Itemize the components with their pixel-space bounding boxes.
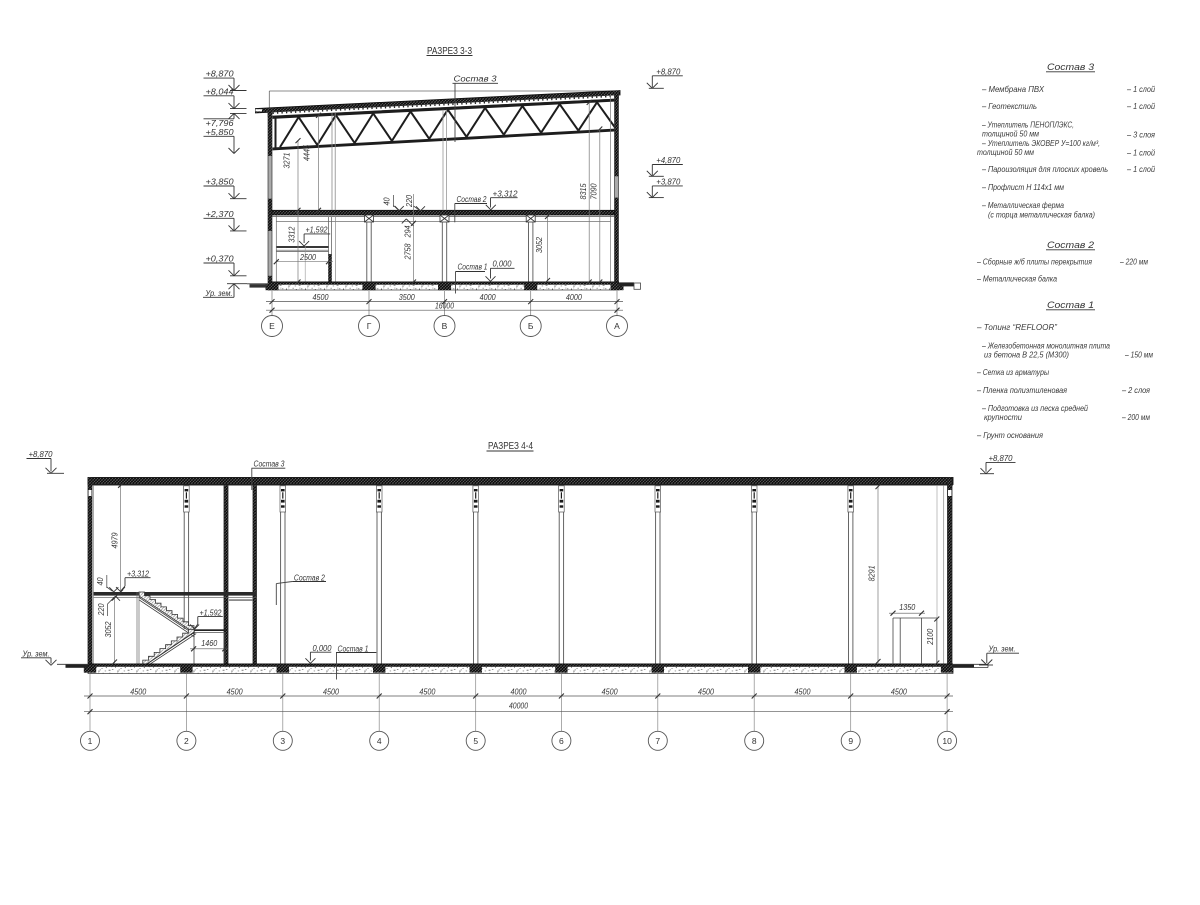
svg-text:+7,796: +7,796 (206, 119, 235, 128)
svg-text:– 3 слоя: – 3 слоя (1126, 131, 1156, 140)
svg-text:Ур. зем.: Ур. зем. (988, 645, 1016, 654)
svg-text:– Утеплитель ПЕНОПЛЭКС,: – Утеплитель ПЕНОПЛЭКС, (981, 121, 1074, 130)
svg-text:4000: 4000 (566, 293, 582, 302)
svg-text:4500: 4500 (891, 687, 907, 696)
svg-text:Состав 3: Состав 3 (1047, 62, 1095, 73)
svg-text:2500: 2500 (299, 253, 316, 262)
svg-text:9: 9 (848, 736, 853, 746)
svg-text:(с торца металлическая балка): (с торца металлическая балка) (988, 211, 1095, 220)
svg-text:4500: 4500 (602, 687, 618, 696)
svg-text:+8,870: +8,870 (656, 67, 681, 76)
svg-text:3052: 3052 (104, 621, 113, 637)
svg-text:4500: 4500 (419, 687, 435, 696)
svg-text:1460: 1460 (201, 639, 217, 648)
svg-text:0,000: 0,000 (313, 644, 333, 653)
svg-text:– Грунт основания: – Грунт основания (976, 431, 1044, 440)
svg-text:3271: 3271 (283, 153, 292, 169)
svg-text:– Железобетонная монолитная п: – Железобетонная монолитная плита (981, 342, 1110, 351)
svg-text:– 2 слоя: – 2 слоя (1121, 386, 1151, 395)
svg-text:4500: 4500 (323, 687, 339, 696)
svg-text:2100: 2100 (926, 628, 935, 645)
svg-text:1: 1 (88, 736, 93, 746)
svg-text:+1,592: +1,592 (306, 225, 328, 234)
svg-text:4979: 4979 (110, 532, 119, 548)
svg-text:5: 5 (473, 736, 478, 746)
svg-text:7090: 7090 (590, 183, 599, 199)
svg-text:крупности: крупности (984, 413, 1023, 422)
svg-text:Г: Г (367, 321, 372, 331)
svg-text:4445: 4445 (303, 145, 312, 161)
svg-text:Б: Б (528, 321, 534, 331)
svg-text:4500: 4500 (227, 687, 243, 696)
svg-text:4500: 4500 (313, 293, 329, 302)
svg-text:4500: 4500 (130, 687, 146, 696)
svg-text:– Профлист Н 114х1 мм: – Профлист Н 114х1 мм (981, 183, 1064, 192)
svg-text:Состав 1: Состав 1 (338, 644, 369, 653)
svg-text:4000: 4000 (480, 293, 496, 302)
svg-text:10: 10 (942, 736, 952, 746)
svg-text:Состав 1: Состав 1 (458, 262, 488, 271)
svg-text:294: 294 (403, 225, 412, 238)
svg-text:4500: 4500 (795, 687, 811, 696)
svg-text:Е: Е (269, 321, 275, 331)
svg-text:+8,870: +8,870 (989, 454, 1014, 463)
svg-text:4000: 4000 (511, 687, 527, 696)
svg-text:0,000: 0,000 (493, 259, 513, 268)
svg-text:+3,312: +3,312 (493, 189, 519, 198)
svg-text:3500: 3500 (399, 293, 415, 302)
svg-text:8: 8 (752, 736, 757, 746)
svg-text:+5,850: +5,850 (206, 128, 235, 137)
svg-text:Ур. зем.: Ур. зем. (22, 649, 50, 658)
svg-text:7: 7 (655, 736, 660, 746)
svg-text:– 1 слой: – 1 слой (1126, 85, 1155, 94)
svg-text:Состав 3: Состав 3 (454, 75, 498, 84)
svg-text:В: В (442, 321, 448, 331)
svg-text:– Топинг “REFLOOR”: – Топинг “REFLOOR” (976, 323, 1057, 332)
svg-text:+0,370: +0,370 (206, 255, 235, 264)
svg-text:40: 40 (383, 197, 392, 205)
svg-text:16000: 16000 (435, 302, 454, 311)
svg-text:– Металлическая ферма: – Металлическая ферма (981, 201, 1064, 210)
svg-text:– Металлическая балка: – Металлическая балка (976, 275, 1057, 284)
svg-text:+3,850: +3,850 (206, 178, 235, 187)
svg-text:+1,592: +1,592 (200, 608, 222, 617)
svg-text:1350: 1350 (899, 603, 915, 612)
svg-text:40: 40 (96, 577, 105, 585)
svg-text:– 1 слой: – 1 слой (1126, 165, 1155, 174)
svg-text:+3,870: +3,870 (656, 177, 681, 186)
svg-text:8315: 8315 (579, 183, 588, 199)
svg-text:8291: 8291 (868, 565, 877, 581)
svg-text:3052: 3052 (535, 237, 544, 253)
svg-text:из бетона В 22,5 (М300): из бетона В 22,5 (М300) (984, 351, 1069, 360)
svg-text:– Сборные ж/б плиты перекрытия: – Сборные ж/б плиты перекрытия (976, 258, 1092, 267)
svg-text:4: 4 (377, 736, 382, 746)
svg-text:4500: 4500 (698, 687, 714, 696)
svg-text:– Пленка полиэтиленовая: – Пленка полиэтиленовая (976, 386, 1068, 395)
svg-text:+3,312: +3,312 (127, 570, 149, 579)
svg-text:толщиной 50 мм: толщиной 50 мм (977, 148, 1034, 157)
svg-text:+8,870: +8,870 (29, 450, 54, 459)
svg-text:3: 3 (280, 736, 285, 746)
svg-text:толщиной 50 мм: толщиной 50 мм (982, 130, 1039, 139)
svg-text:– 200 мм: – 200 мм (1121, 413, 1150, 422)
svg-text:– 220 мм: – 220 мм (1119, 258, 1148, 267)
svg-text:– 150 мм: – 150 мм (1124, 351, 1153, 360)
svg-text:– Геотекстиль: – Геотекстиль (981, 102, 1037, 111)
svg-text:– Пароизоляция для плоских кро: – Пароизоляция для плоских кровель (981, 165, 1108, 174)
svg-text:– Подготовка из песка средней: – Подготовка из песка средней (981, 404, 1088, 413)
svg-text:2: 2 (184, 736, 189, 746)
svg-text:+2,370: +2,370 (206, 210, 235, 219)
svg-text:3312: 3312 (288, 226, 297, 242)
svg-text:Состав 3: Состав 3 (254, 460, 285, 469)
svg-text:Ур. зем.: Ур. зем. (205, 289, 233, 298)
svg-text:РАЗРЕЗ 4-4: РАЗРЕЗ 4-4 (488, 441, 533, 452)
svg-text:2758: 2758 (403, 243, 412, 260)
svg-text:Состав 2: Состав 2 (457, 195, 487, 204)
svg-text:– 1 слой: – 1 слой (1126, 149, 1155, 158)
svg-text:– Мембрана ПВХ: – Мембрана ПВХ (981, 85, 1045, 94)
svg-text:– Утеплитель ЭКОВЕР У=100 кг/м: – Утеплитель ЭКОВЕР У=100 кг/м³, (981, 139, 1100, 148)
svg-text:6: 6 (559, 736, 564, 746)
svg-text:40000: 40000 (509, 702, 528, 711)
svg-text:– Сетка из арматуры: – Сетка из арматуры (976, 368, 1049, 377)
svg-text:+4,870: +4,870 (656, 156, 681, 165)
svg-text:+8,044: +8,044 (206, 87, 235, 96)
svg-text:Состав 2: Состав 2 (294, 573, 325, 582)
svg-text:+8,870: +8,870 (206, 70, 235, 79)
svg-text:– 1 слой: – 1 слой (1126, 102, 1155, 111)
svg-text:А: А (614, 321, 620, 331)
svg-text:220: 220 (405, 195, 414, 208)
svg-text:220: 220 (97, 603, 106, 616)
